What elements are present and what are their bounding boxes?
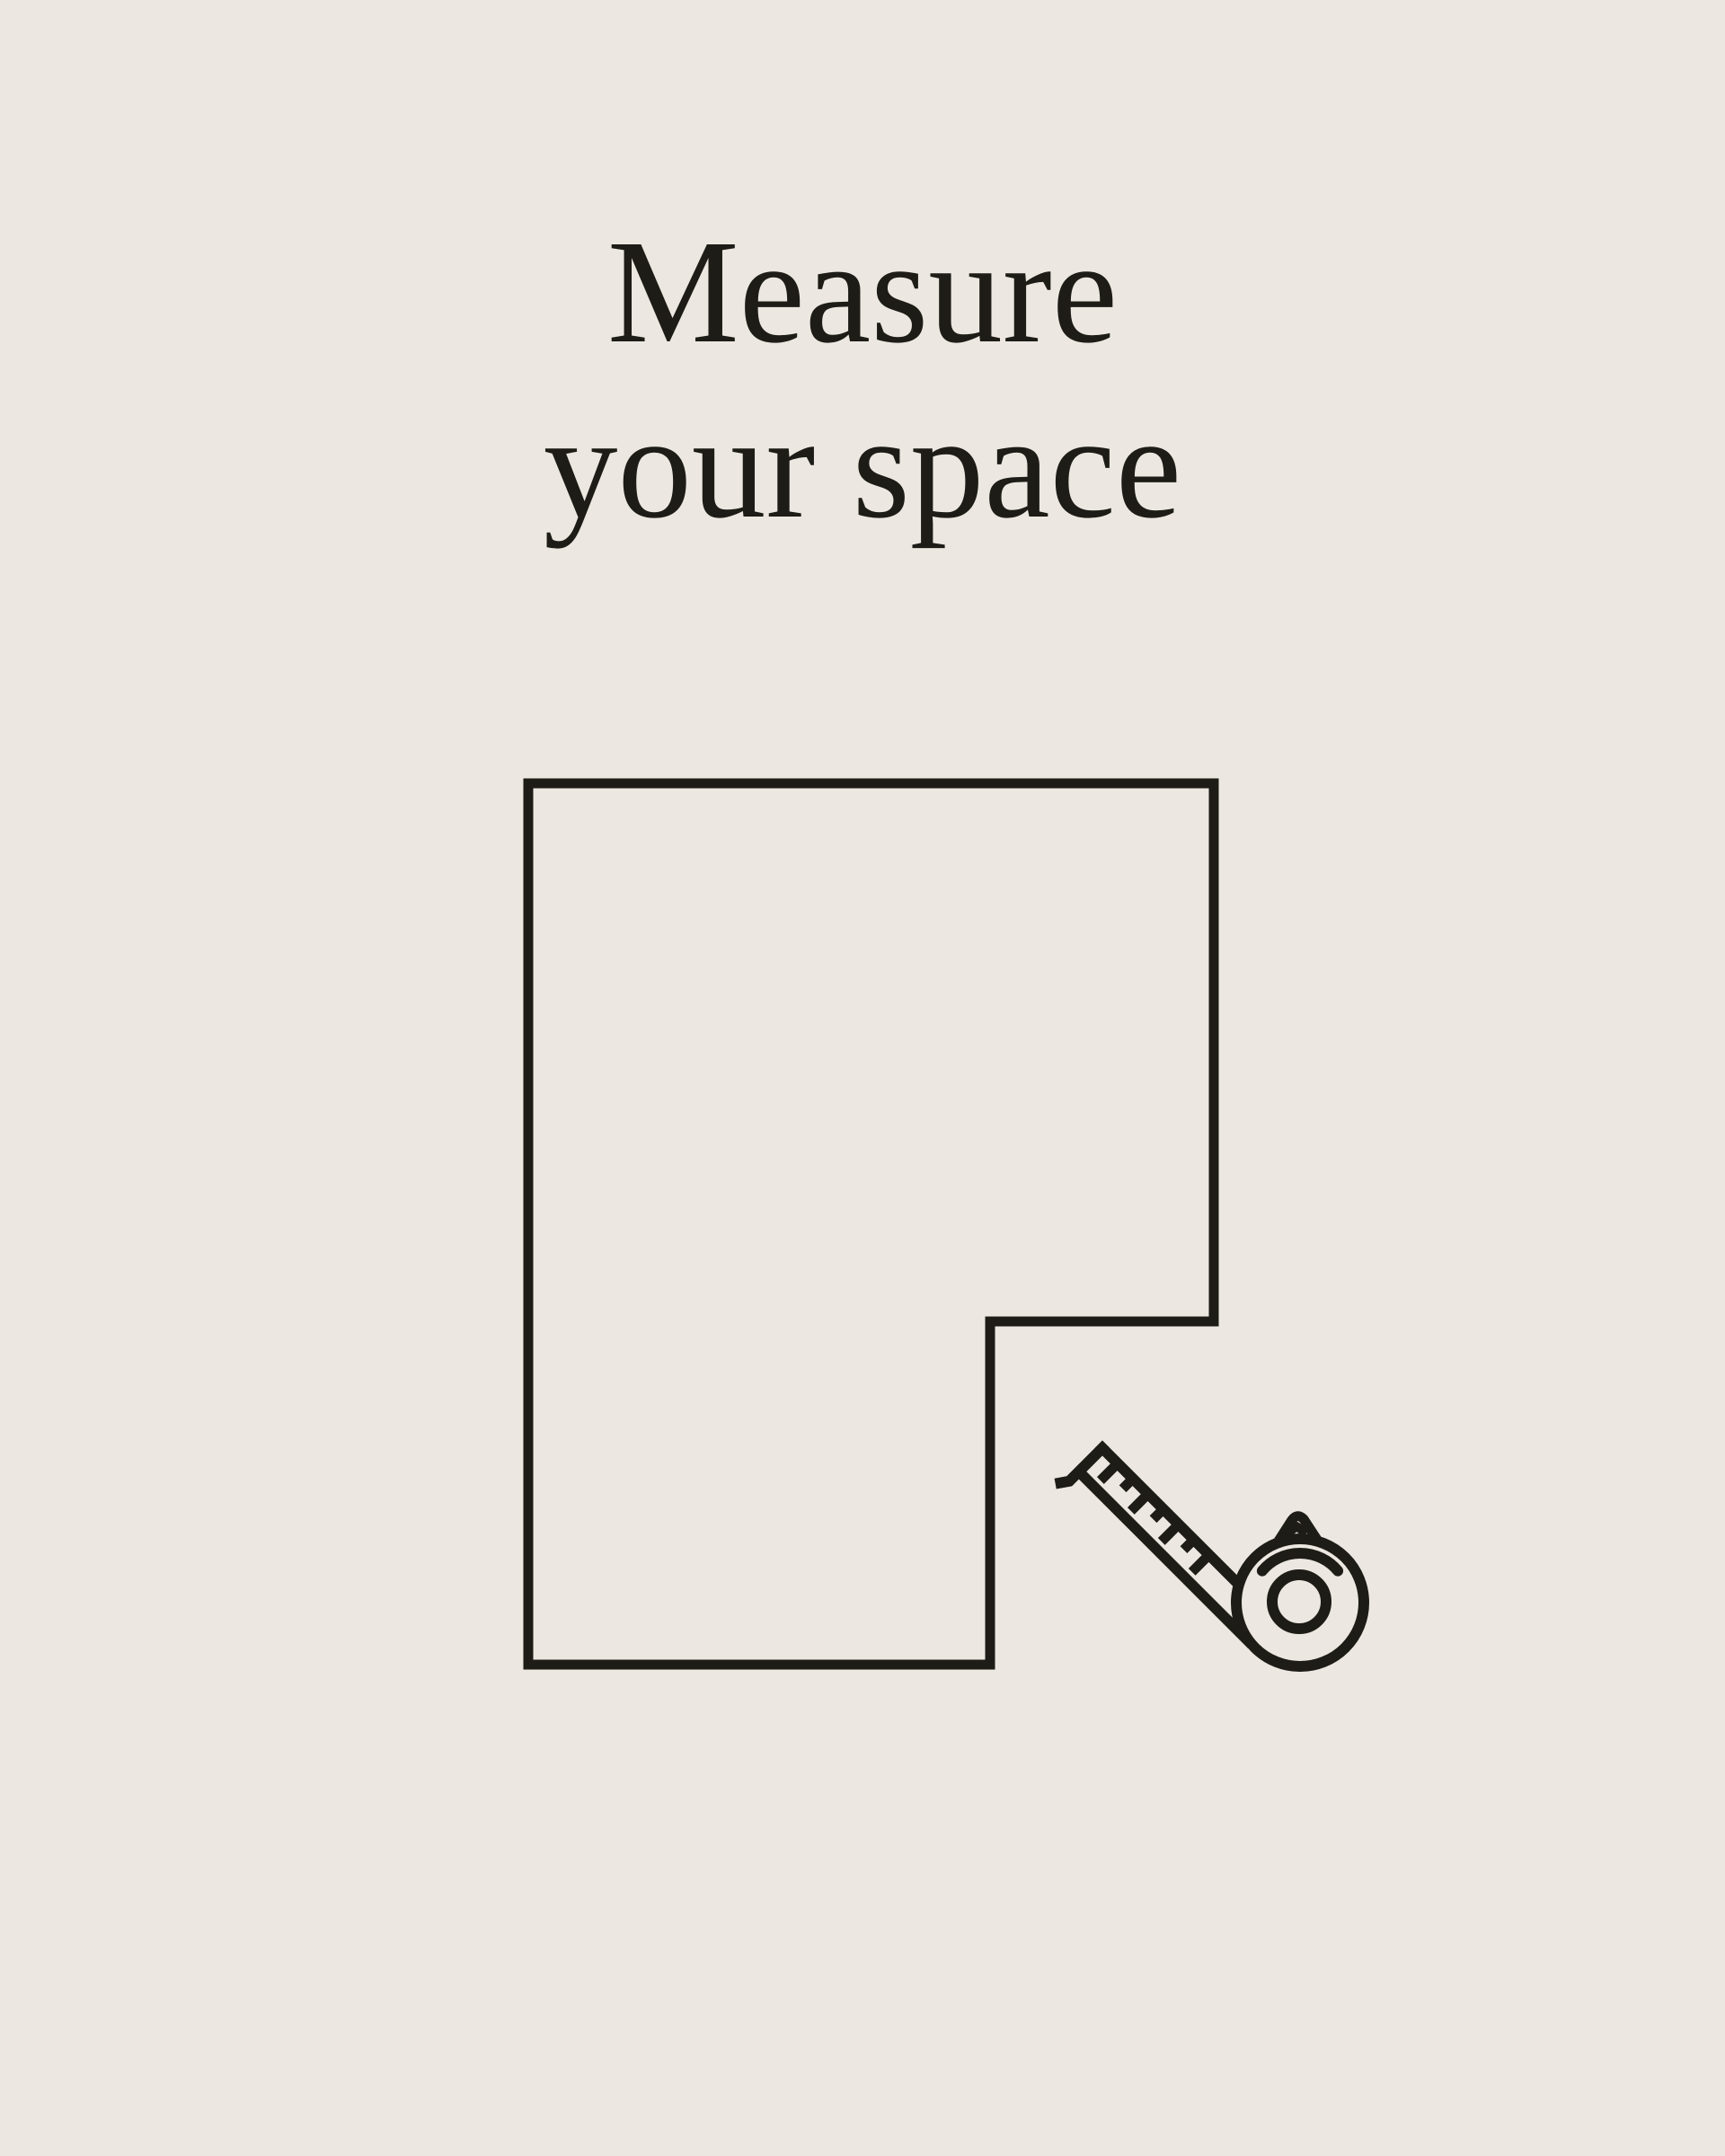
tape-measure-hub (1272, 1575, 1326, 1629)
floor-plan-illustration (0, 0, 1725, 2156)
tape-measure-icon (1056, 1438, 1364, 1666)
tape-end-hook (1056, 1438, 1107, 1489)
room-outline (528, 783, 1214, 1665)
tape-tick-marks (1101, 1463, 1209, 1572)
tape-strip-lower-edge (1079, 1471, 1252, 1644)
tape-measure-clip-inner (1287, 1526, 1306, 1534)
measure-your-space-card: Measure your space (0, 0, 1725, 2156)
tape-measure-arc (1262, 1553, 1338, 1571)
